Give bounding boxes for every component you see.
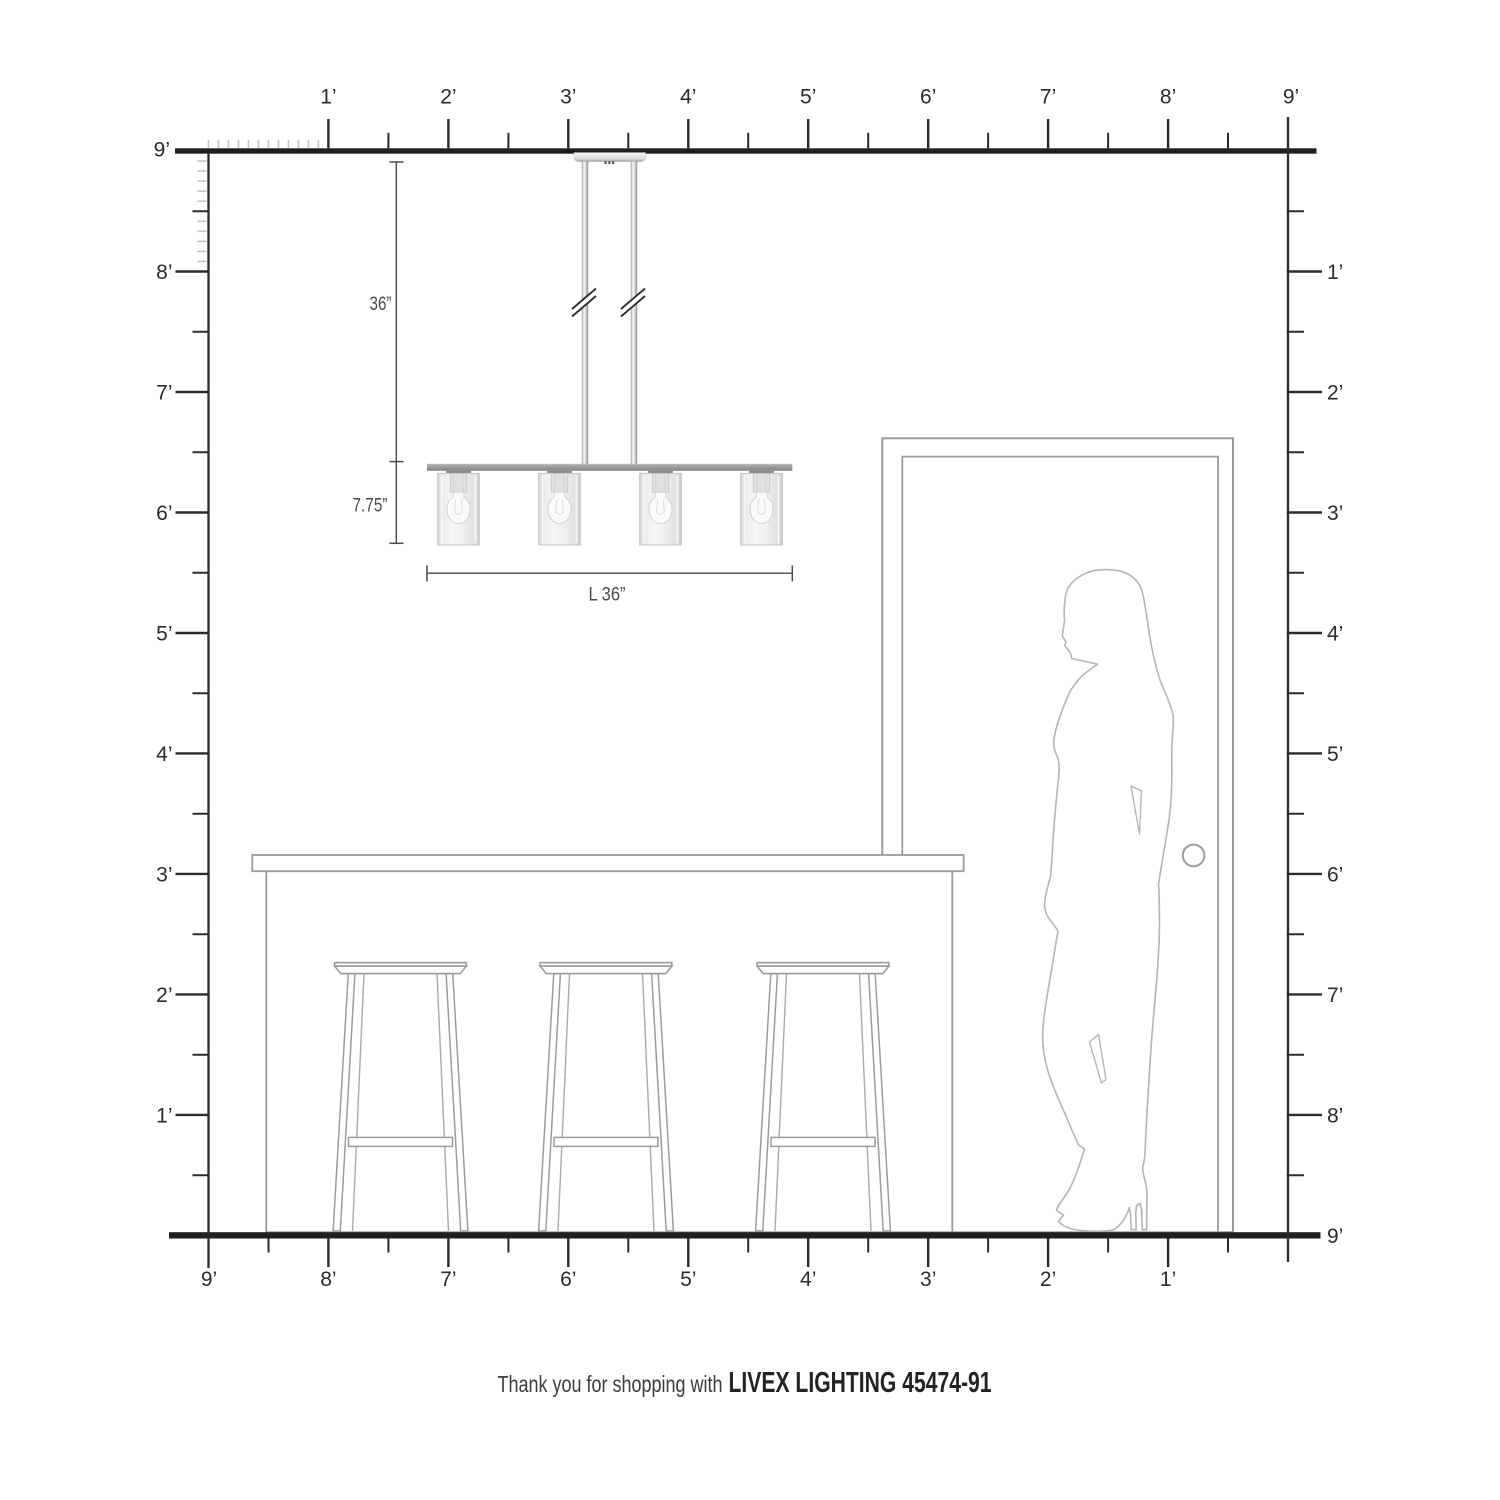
- svg-text:2’: 2’: [440, 86, 456, 109]
- svg-text:1’: 1’: [320, 86, 336, 109]
- svg-text:6’: 6’: [1327, 863, 1343, 886]
- svg-text:5’: 5’: [680, 1268, 696, 1291]
- svg-text:7’: 7’: [440, 1268, 456, 1291]
- svg-text:7.75”: 7.75”: [353, 495, 388, 517]
- svg-text:2’: 2’: [1040, 1268, 1056, 1291]
- svg-text:4’: 4’: [680, 86, 696, 109]
- svg-text:4’: 4’: [800, 1268, 816, 1291]
- svg-text:7’: 7’: [1040, 86, 1056, 109]
- svg-text:2’: 2’: [1327, 382, 1343, 405]
- svg-text:6’: 6’: [920, 86, 936, 109]
- svg-text:7’: 7’: [156, 382, 172, 405]
- svg-text:8’: 8’: [156, 261, 172, 284]
- svg-text:2’: 2’: [156, 984, 172, 1007]
- svg-text:9’: 9’: [201, 1268, 217, 1291]
- svg-text:3’: 3’: [156, 863, 172, 886]
- svg-text:1’: 1’: [1160, 1268, 1176, 1291]
- svg-text:9’: 9’: [154, 139, 170, 162]
- svg-text:1’: 1’: [1327, 261, 1343, 284]
- svg-text:6’: 6’: [560, 1268, 576, 1291]
- svg-text:36”: 36”: [370, 293, 392, 315]
- svg-text:6’: 6’: [156, 502, 172, 525]
- svg-text:7’: 7’: [1327, 984, 1343, 1007]
- svg-text:8’: 8’: [1327, 1104, 1343, 1127]
- svg-text:Thank you for shopping with: Thank you for shopping with: [498, 1371, 723, 1397]
- svg-text:4’: 4’: [1327, 623, 1343, 646]
- svg-text:3’: 3’: [920, 1268, 936, 1291]
- svg-text:LIVEX LIGHTING 45474-91: LIVEX LIGHTING 45474-91: [729, 1367, 992, 1399]
- svg-text:3’: 3’: [560, 86, 576, 109]
- svg-text:8’: 8’: [320, 1268, 336, 1291]
- svg-text:5’: 5’: [156, 623, 172, 646]
- svg-text:9’: 9’: [1327, 1225, 1343, 1248]
- svg-text:4’: 4’: [156, 743, 172, 766]
- svg-text:9’: 9’: [1283, 86, 1299, 109]
- svg-text:8’: 8’: [1160, 86, 1176, 109]
- svg-text:5’: 5’: [800, 86, 816, 109]
- svg-text:3’: 3’: [1327, 502, 1343, 525]
- svg-text:5’: 5’: [1327, 743, 1343, 766]
- svg-text:L 36”: L 36”: [589, 584, 626, 606]
- svg-text:1’: 1’: [156, 1104, 172, 1127]
